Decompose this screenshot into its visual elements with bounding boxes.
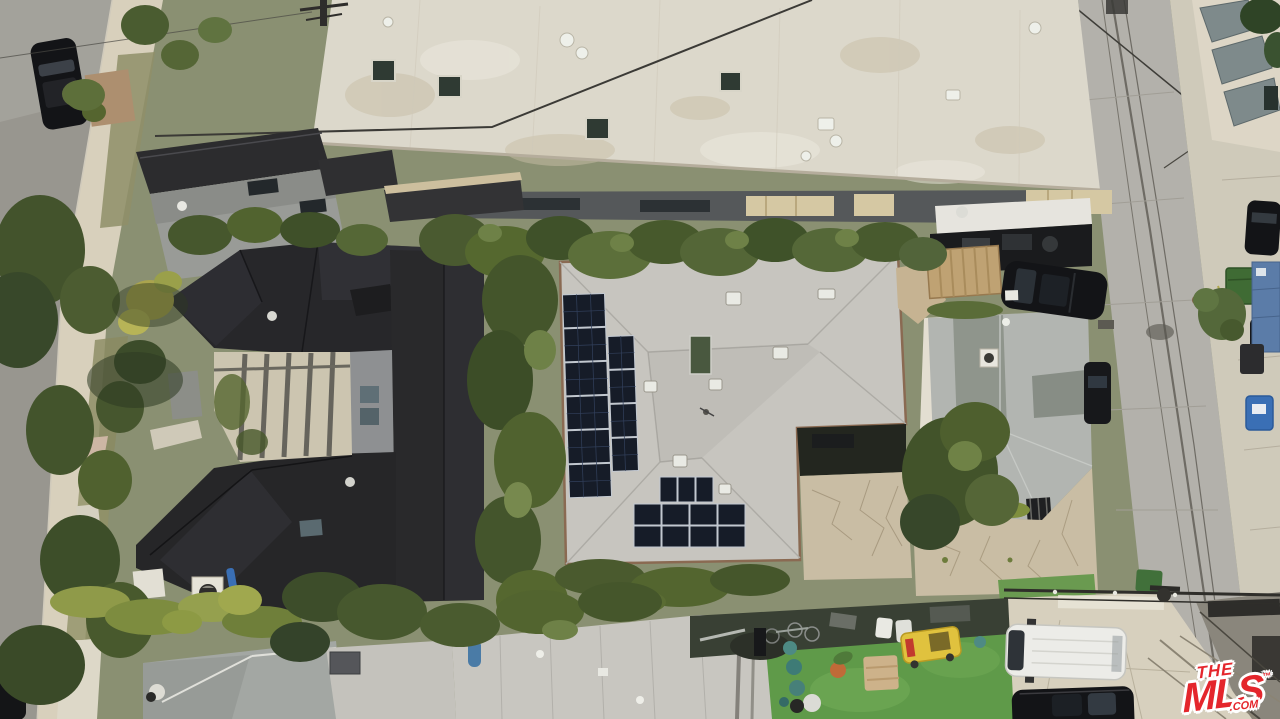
bbq-island — [812, 434, 854, 448]
satellite-dish — [956, 206, 968, 218]
white-jug — [875, 617, 893, 639]
black-bin — [1240, 344, 1264, 374]
suv-sunroof — [1052, 694, 1083, 717]
tree-shadow — [87, 352, 183, 408]
pergola-courtyard — [214, 352, 352, 462]
skylight — [360, 408, 379, 425]
van-windshield — [1007, 630, 1024, 671]
white-van — [1005, 618, 1127, 686]
skylight — [360, 386, 379, 403]
chimney — [980, 349, 998, 367]
mls-watermark-tm: ™ — [1262, 673, 1271, 681]
courtyard-vines — [214, 374, 250, 430]
white-ball — [803, 694, 821, 712]
pallet-sofa — [863, 655, 899, 691]
pole-top — [1106, 0, 1128, 14]
solar-array-west-col2 — [608, 336, 639, 472]
aerial-scene — [0, 0, 1280, 719]
dark-panel — [754, 628, 766, 656]
flat-roof-section — [326, 640, 456, 719]
low-slope-panel — [1032, 370, 1086, 418]
right-edge-car-1 — [1244, 200, 1280, 256]
skylight — [690, 336, 711, 374]
suv-sunroof — [1038, 273, 1070, 307]
rear-courtyard — [797, 424, 912, 580]
ac-unit — [330, 652, 360, 674]
roof-vent — [267, 311, 277, 321]
car-windshield — [1251, 212, 1277, 224]
awning — [854, 194, 894, 216]
yellow-shrub — [218, 585, 262, 615]
solar-array-west-col1 — [562, 293, 611, 497]
parked-car-right-house — [1084, 362, 1111, 424]
courtyard-shadow — [797, 424, 906, 476]
solar-house — [560, 254, 912, 580]
flagstone-patio — [800, 472, 912, 580]
awning — [746, 196, 834, 216]
mls-watermark: THE MLS ™ .COM — [1182, 658, 1273, 719]
blue-recycling-bin — [1246, 396, 1273, 430]
dark-fence — [1208, 599, 1280, 618]
aerial-photo: THE MLS ™ .COM — [0, 0, 1280, 719]
skylight — [372, 60, 395, 81]
tar-patch — [1146, 324, 1174, 340]
facade-window — [520, 198, 580, 210]
skylight — [299, 519, 322, 537]
black-ball — [790, 699, 804, 713]
black-suv-bottom — [1011, 686, 1134, 719]
dark-window — [1264, 86, 1278, 110]
utility-pole — [1157, 588, 1171, 602]
suv-windshield — [1088, 692, 1117, 715]
drain-grate — [1098, 320, 1114, 329]
white-wall — [1058, 595, 1164, 610]
